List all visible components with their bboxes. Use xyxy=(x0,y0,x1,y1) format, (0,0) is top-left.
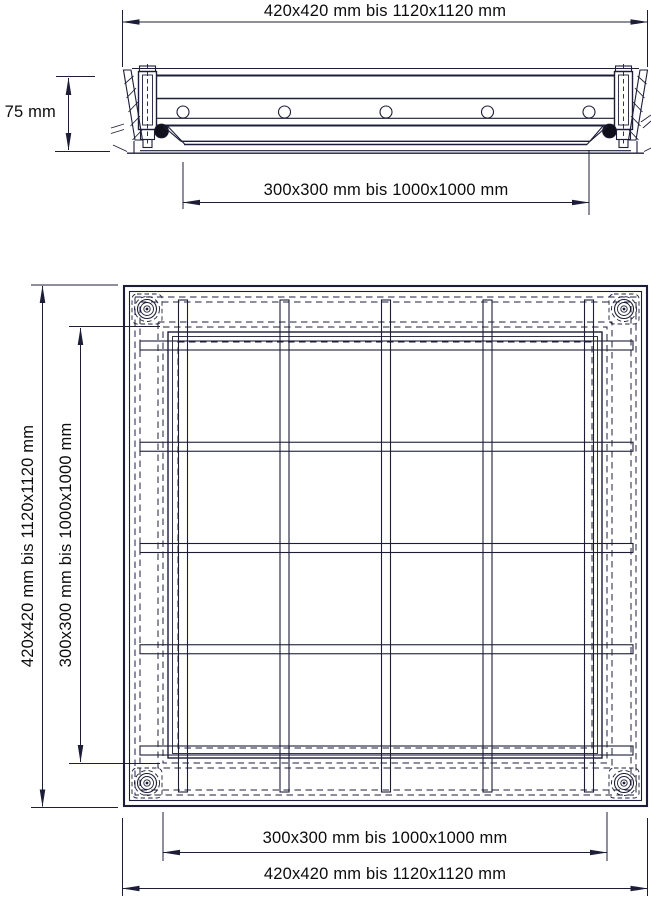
section-hole-circles xyxy=(177,106,595,118)
plan-corner-socket-top-right xyxy=(609,294,639,324)
technical-drawing-canvas: 420x420 mm bis 1120x1120 mm 75 mm 300x30… xyxy=(0,0,651,903)
dimension-label-plan-left-outer: 420x420 mm bis 1120x1120 mm xyxy=(18,421,38,671)
plan-cover-edge xyxy=(168,332,602,758)
dimension-label-top-outer: 420x420 mm bis 1120x1120 mm xyxy=(130,1,640,21)
plan-view xyxy=(124,286,647,806)
plan-corner-socket-bottom-left xyxy=(132,768,162,798)
section-bottom-plate xyxy=(113,141,651,153)
section-view xyxy=(111,64,651,153)
dimension-plan-left-inner xyxy=(69,327,160,764)
dimension-label-section-clear-opening: 300x300 mm bis 1000x1000 mm xyxy=(161,180,611,200)
drawing-linework xyxy=(0,0,651,903)
plan-corner-socket-top-left xyxy=(132,294,162,324)
dimension-section-height xyxy=(55,77,110,152)
plan-clear-opening xyxy=(163,327,607,763)
section-tray-profile xyxy=(163,126,608,145)
dimension-label-section-height: 75 mm xyxy=(0,102,56,122)
dimension-label-plan-bottom-inner: 300x300 mm bis 1000x1000 mm xyxy=(160,828,610,848)
section-frame-wedge-left xyxy=(111,70,143,140)
dimension-label-plan-bottom-outer: 420x420 mm bis 1120x1120 mm xyxy=(130,864,640,884)
dimension-label-plan-left-inner: 300x300 mm bis 1000x1000 mm xyxy=(56,420,76,670)
section-seal-left xyxy=(155,124,169,138)
section-seal-right xyxy=(603,124,617,138)
plan-outer-frame xyxy=(124,286,647,806)
plan-stiffener-grid xyxy=(140,300,633,792)
plan-corner-socket-bottom-right xyxy=(609,768,639,798)
